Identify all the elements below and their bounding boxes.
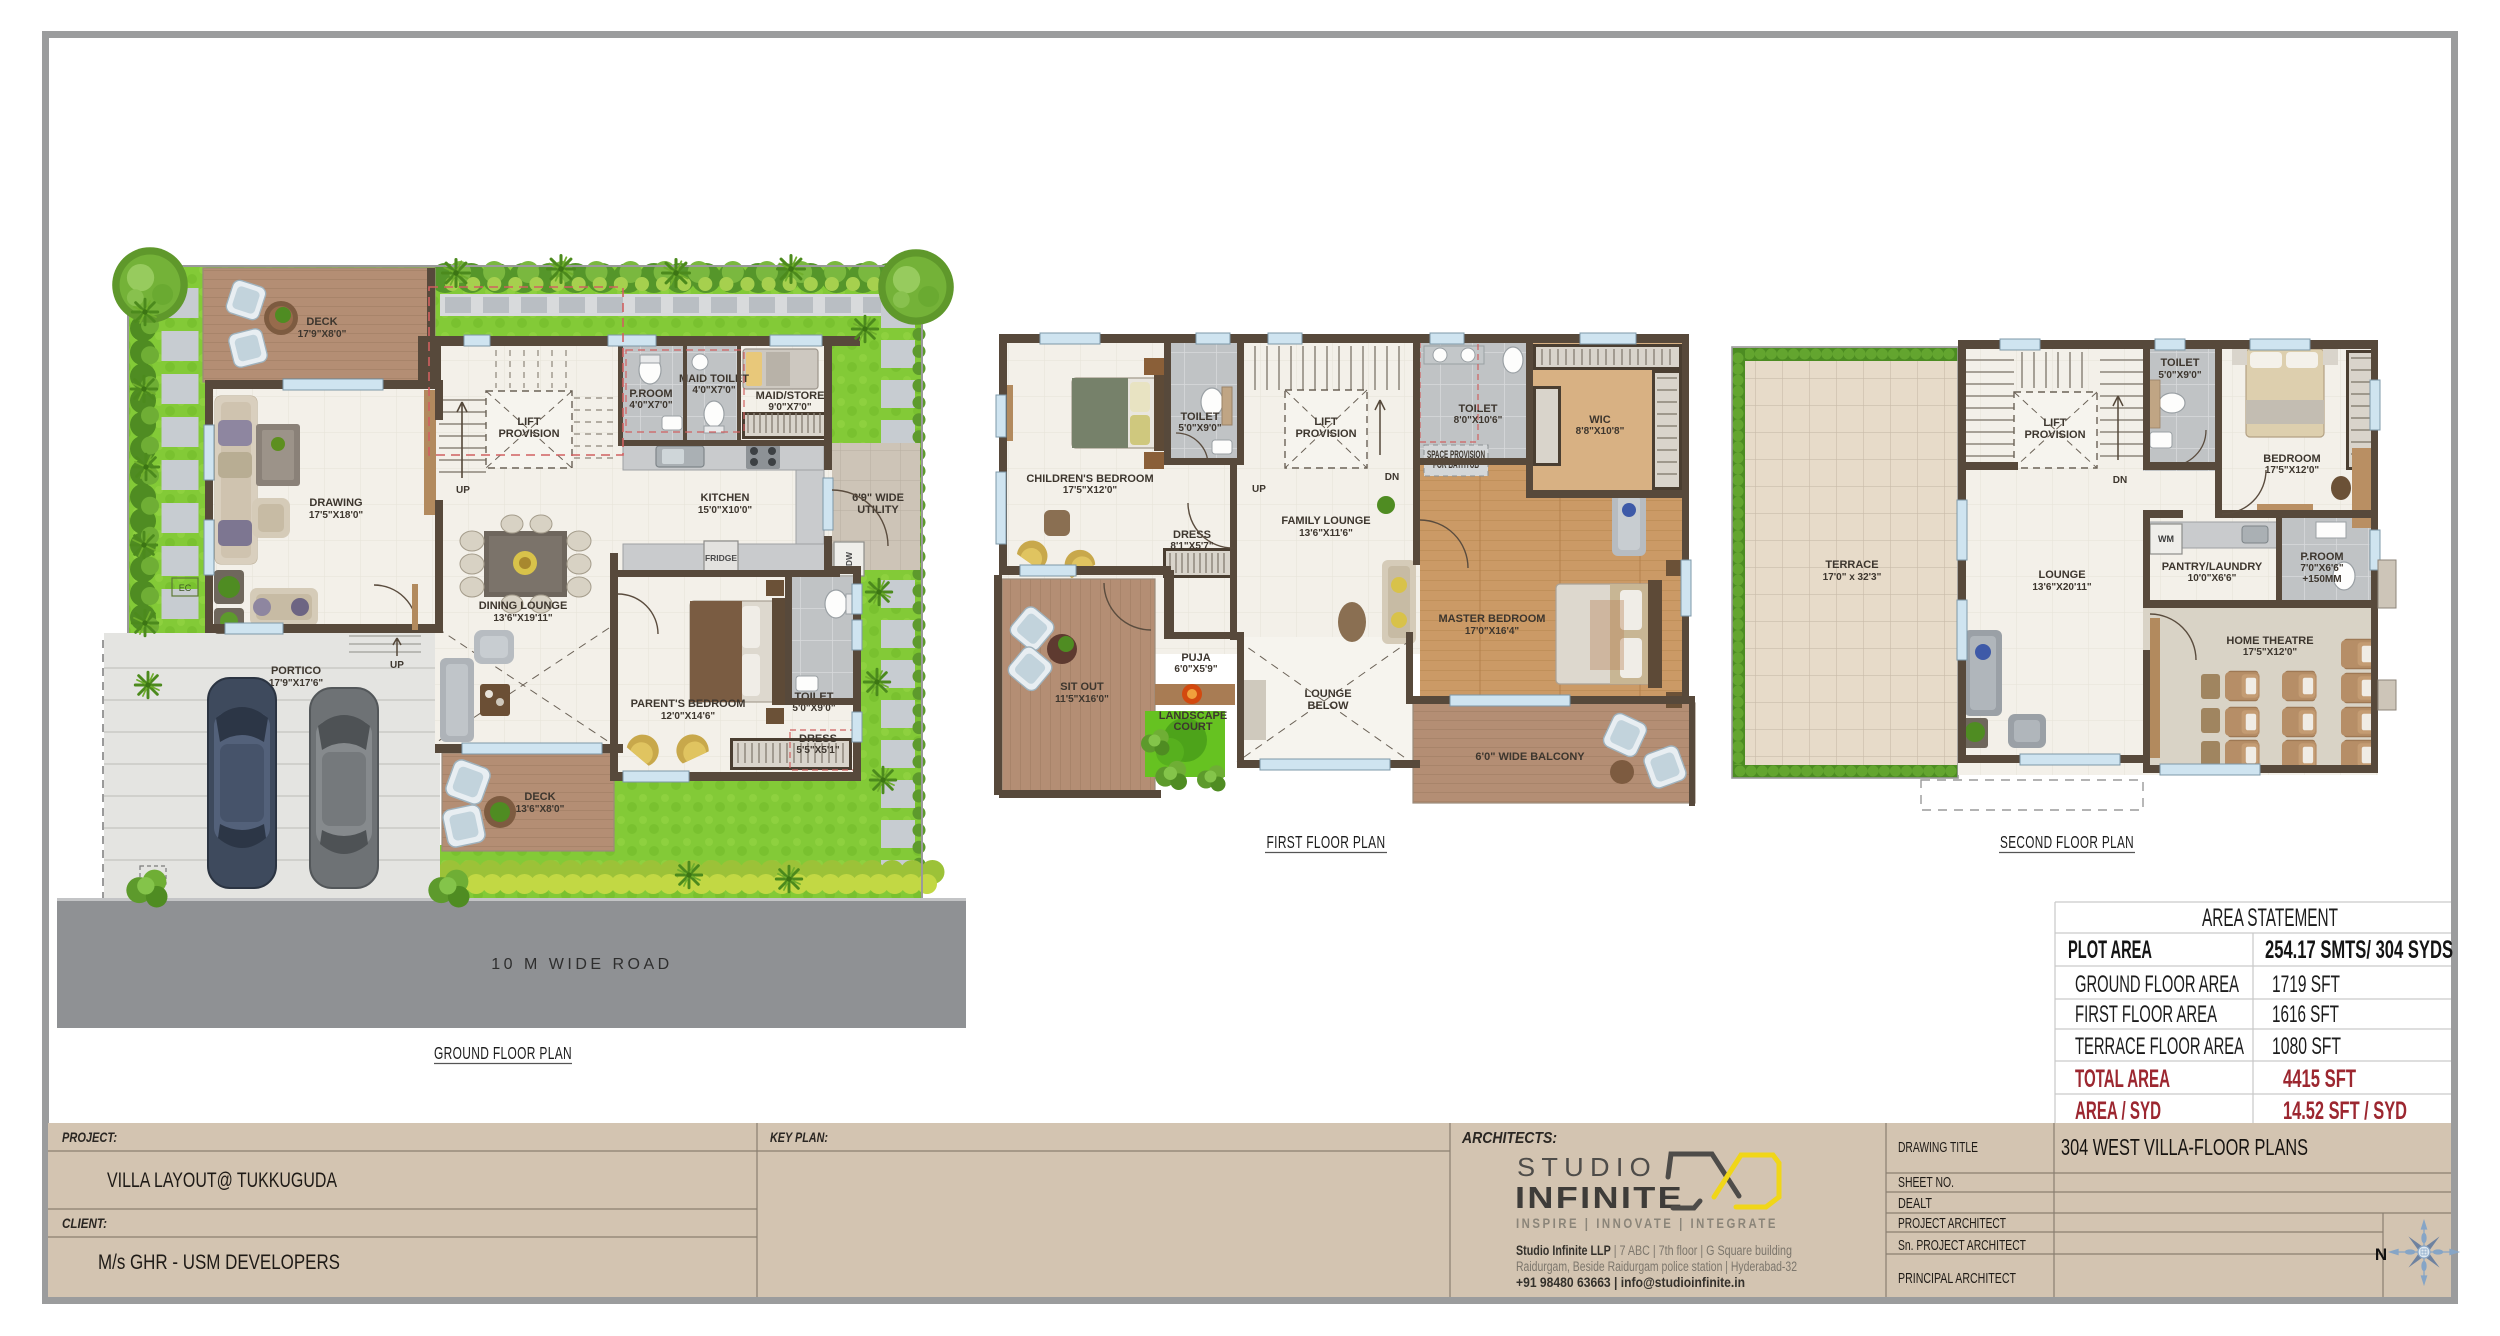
svg-text:11'5"X16'0": 11'5"X16'0" (1055, 694, 1109, 705)
svg-text:PROVISION: PROVISION (2024, 429, 2085, 441)
svg-text:AREA / SYD: AREA / SYD (2075, 1097, 2161, 1125)
svg-text:PROVISION: PROVISION (498, 428, 559, 440)
svg-text:1616 SFT: 1616 SFT (2272, 1001, 2339, 1028)
svg-text:FIRST FLOOR PLAN: FIRST FLOOR PLAN (1267, 832, 1386, 852)
svg-text:SHEET NO.: SHEET NO. (1898, 1174, 1954, 1191)
svg-text:EC: EC (179, 583, 192, 593)
svg-text:5'0"X9'0": 5'0"X9'0" (2158, 370, 2201, 381)
svg-text:COURT: COURT (1173, 721, 1212, 733)
svg-text:FIRST FLOOR AREA: FIRST FLOOR AREA (2075, 1001, 2217, 1028)
svg-text:WIC: WIC (1589, 414, 1610, 426)
svg-text:FAMILY LOUNGE: FAMILY LOUNGE (1281, 515, 1370, 527)
svg-text:4'0"X7'0": 4'0"X7'0" (629, 400, 672, 411)
svg-text:PLOT AREA: PLOT AREA (2068, 936, 2152, 964)
svg-text:KEY PLAN:: KEY PLAN: (770, 1129, 828, 1145)
svg-text:VILLA LAYOUT@ TUKKUGUDA: VILLA LAYOUT@ TUKKUGUDA (107, 1169, 337, 1192)
svg-text:5'0"X9'0": 5'0"X9'0" (1178, 423, 1221, 434)
svg-text:TOILET: TOILET (2161, 357, 2200, 369)
svg-text:DW: DW (844, 551, 854, 566)
svg-text:DRAWING TITLE: DRAWING TITLE (1898, 1139, 1978, 1156)
svg-text:BEDROOM: BEDROOM (2263, 453, 2320, 465)
svg-text:5'5"X5'1": 5'5"X5'1" (796, 745, 839, 756)
svg-text:Raidurgam, Beside Raidurgam po: Raidurgam, Beside Raidurgam police stati… (1516, 1259, 1797, 1274)
svg-text:DECK: DECK (306, 316, 337, 328)
svg-text:CLIENT:: CLIENT: (62, 1215, 107, 1231)
svg-text:M/s GHR - USM DEVELOPERS: M/s GHR - USM DEVELOPERS (98, 1251, 340, 1274)
svg-text:DRAWING: DRAWING (309, 497, 362, 509)
svg-text:STUDIO: STUDIO (1517, 1152, 1657, 1182)
svg-text:9'0"X7'0": 9'0"X7'0" (768, 402, 811, 413)
svg-text:DECK: DECK (524, 791, 555, 803)
svg-text:17'9"X17'6": 17'9"X17'6" (269, 678, 324, 689)
svg-text:8'1"X5'7": 8'1"X5'7" (1170, 541, 1213, 552)
svg-text:GROUND FLOOR AREA: GROUND FLOOR AREA (2075, 971, 2239, 998)
svg-text:17'0"X16'4": 17'0"X16'4" (1465, 626, 1520, 637)
svg-text:WM: WM (2158, 534, 2174, 544)
svg-text:MAID/STORE: MAID/STORE (756, 390, 825, 402)
svg-text:6'0"X5'9": 6'0"X5'9" (1174, 664, 1217, 675)
svg-text:12'0"X14'6": 12'0"X14'6" (661, 711, 716, 722)
svg-text:17'5"X12'0": 17'5"X12'0" (2243, 647, 2298, 658)
svg-text:4'0"X7'0": 4'0"X7'0" (692, 385, 735, 396)
svg-text:LIFT: LIFT (2043, 417, 2066, 429)
svg-text:GROUND FLOOR PLAN: GROUND FLOOR PLAN (434, 1043, 572, 1063)
svg-text:KITCHEN: KITCHEN (701, 492, 750, 504)
svg-text:HOME THEATRE: HOME THEATRE (2226, 635, 2313, 647)
svg-text:TERRACE: TERRACE (1825, 559, 1878, 571)
svg-text:MASTER BEDROOM: MASTER BEDROOM (1439, 613, 1546, 625)
svg-text:DN: DN (1385, 472, 1399, 483)
svg-text:PROJECT:: PROJECT: (62, 1129, 117, 1145)
svg-text:BELOW: BELOW (1308, 700, 1350, 712)
svg-text:PROVISION: PROVISION (1295, 428, 1356, 440)
svg-text:1080 SFT: 1080 SFT (2272, 1033, 2341, 1060)
svg-text:PRINCIPAL ARCHITECT: PRINCIPAL ARCHITECT (1898, 1270, 2016, 1287)
svg-text:P.ROOM: P.ROOM (2300, 551, 2343, 563)
svg-text:1719 SFT: 1719 SFT (2272, 971, 2340, 998)
svg-text:UP: UP (456, 485, 470, 496)
svg-text:17'5"X18'0": 17'5"X18'0" (309, 510, 364, 521)
svg-text:13'6"X11'6": 13'6"X11'6" (1299, 528, 1353, 539)
svg-text:6'0" WIDE BALCONY: 6'0" WIDE BALCONY (1475, 751, 1585, 763)
svg-text:Sn. PROJECT ARCHITECT: Sn. PROJECT ARCHITECT (1898, 1237, 2026, 1254)
svg-text:14.52 SFT / SYD: 14.52 SFT / SYD (2283, 1097, 2407, 1125)
svg-text:INSPIRE | INNOVATE | INTEG: INSPIRE | INNOVATE | INTEGRATE (1516, 1216, 1778, 1231)
svg-text:13'6"X20'11": 13'6"X20'11" (2032, 582, 2092, 593)
svg-text:LIFT: LIFT (517, 416, 540, 428)
svg-text:SIT OUT: SIT OUT (1060, 681, 1104, 693)
svg-text:304 WEST VILLA-FLOOR PLANS: 304 WEST VILLA-FLOOR PLANS (2061, 1134, 2308, 1160)
svg-text:TOILET: TOILET (1181, 411, 1220, 423)
svg-text:DRESS: DRESS (799, 733, 837, 745)
svg-text:N: N (2375, 1245, 2387, 1264)
svg-text:10'0"X6'6": 10'0"X6'6" (2188, 573, 2237, 584)
svg-text:PORTICO: PORTICO (271, 665, 322, 677)
svg-text:13'6"X8'0": 13'6"X8'0" (516, 804, 565, 815)
svg-text:15'0"X10'0": 15'0"X10'0" (698, 505, 753, 516)
svg-text:LOUNGE: LOUNGE (1304, 688, 1351, 700)
svg-text:ARCHITECTS:: ARCHITECTS: (1461, 1130, 1557, 1147)
svg-text:LOUNGE: LOUNGE (2038, 569, 2085, 581)
svg-text:+150MM: +150MM (2302, 574, 2341, 585)
svg-text:4415 SFT: 4415 SFT (2283, 1065, 2356, 1093)
svg-text:FRIDGE: FRIDGE (705, 553, 737, 563)
svg-text:+91 98480 63663 | info@studi: +91 98480 63663 | info@studioinfinite.in (1516, 1275, 1745, 1290)
svg-text:17'5"X12'0": 17'5"X12'0" (1063, 485, 1118, 496)
svg-text:INFINITE: INFINITE (1515, 1180, 1684, 1215)
svg-text:17'0" x 32'3": 17'0" x 32'3" (1823, 572, 1882, 583)
svg-text:AREA STATEMENT: AREA STATEMENT (2202, 904, 2338, 932)
svg-text:DEALT: DEALT (1898, 1195, 1932, 1212)
svg-text:P.ROOM: P.ROOM (629, 388, 672, 400)
svg-text:254.17 SMTS/ 304 SYDS: 254.17 SMTS/ 304 SYDS (2265, 936, 2453, 964)
svg-text:PUJA: PUJA (1181, 652, 1210, 664)
svg-text:7'0"X6'6": 7'0"X6'6" (2300, 563, 2343, 574)
svg-text:TERRACE FLOOR AREA: TERRACE FLOOR AREA (2075, 1033, 2244, 1060)
svg-text:PANTRY/LAUNDRY: PANTRY/LAUNDRY (2162, 561, 2263, 573)
svg-text:SECOND FLOOR PLAN: SECOND FLOOR PLAN (2000, 832, 2134, 852)
svg-text:DN: DN (2113, 475, 2127, 486)
svg-text:CHILDREN'S BEDROOM: CHILDREN'S BEDROOM (1026, 473, 1153, 485)
svg-text:UP: UP (390, 660, 404, 671)
svg-text:DINING LOUNGE: DINING LOUNGE (479, 600, 568, 612)
svg-text:10 M WIDE ROAD: 10 M WIDE ROAD (491, 956, 672, 973)
svg-text:LIFT: LIFT (1314, 416, 1337, 428)
svg-text:PARENT'S BEDROOM: PARENT'S BEDROOM (631, 698, 746, 710)
svg-text:8'8"X10'8": 8'8"X10'8" (1576, 426, 1625, 437)
svg-text:PROJECT ARCHITECT: PROJECT ARCHITECT (1898, 1215, 2006, 1232)
svg-text:17'5"X12'0": 17'5"X12'0" (2265, 465, 2320, 476)
svg-text:UP: UP (1252, 484, 1266, 495)
svg-text:13'6"X19'11": 13'6"X19'11" (493, 613, 553, 624)
svg-text:TOTAL AREA: TOTAL AREA (2075, 1065, 2170, 1093)
svg-text:17'9"X8'0": 17'9"X8'0" (298, 329, 347, 340)
svg-text:Studio Infinite LLP | 7 ABC |: Studio Infinite LLP | 7 ABC | 7th floor … (1516, 1243, 1792, 1258)
